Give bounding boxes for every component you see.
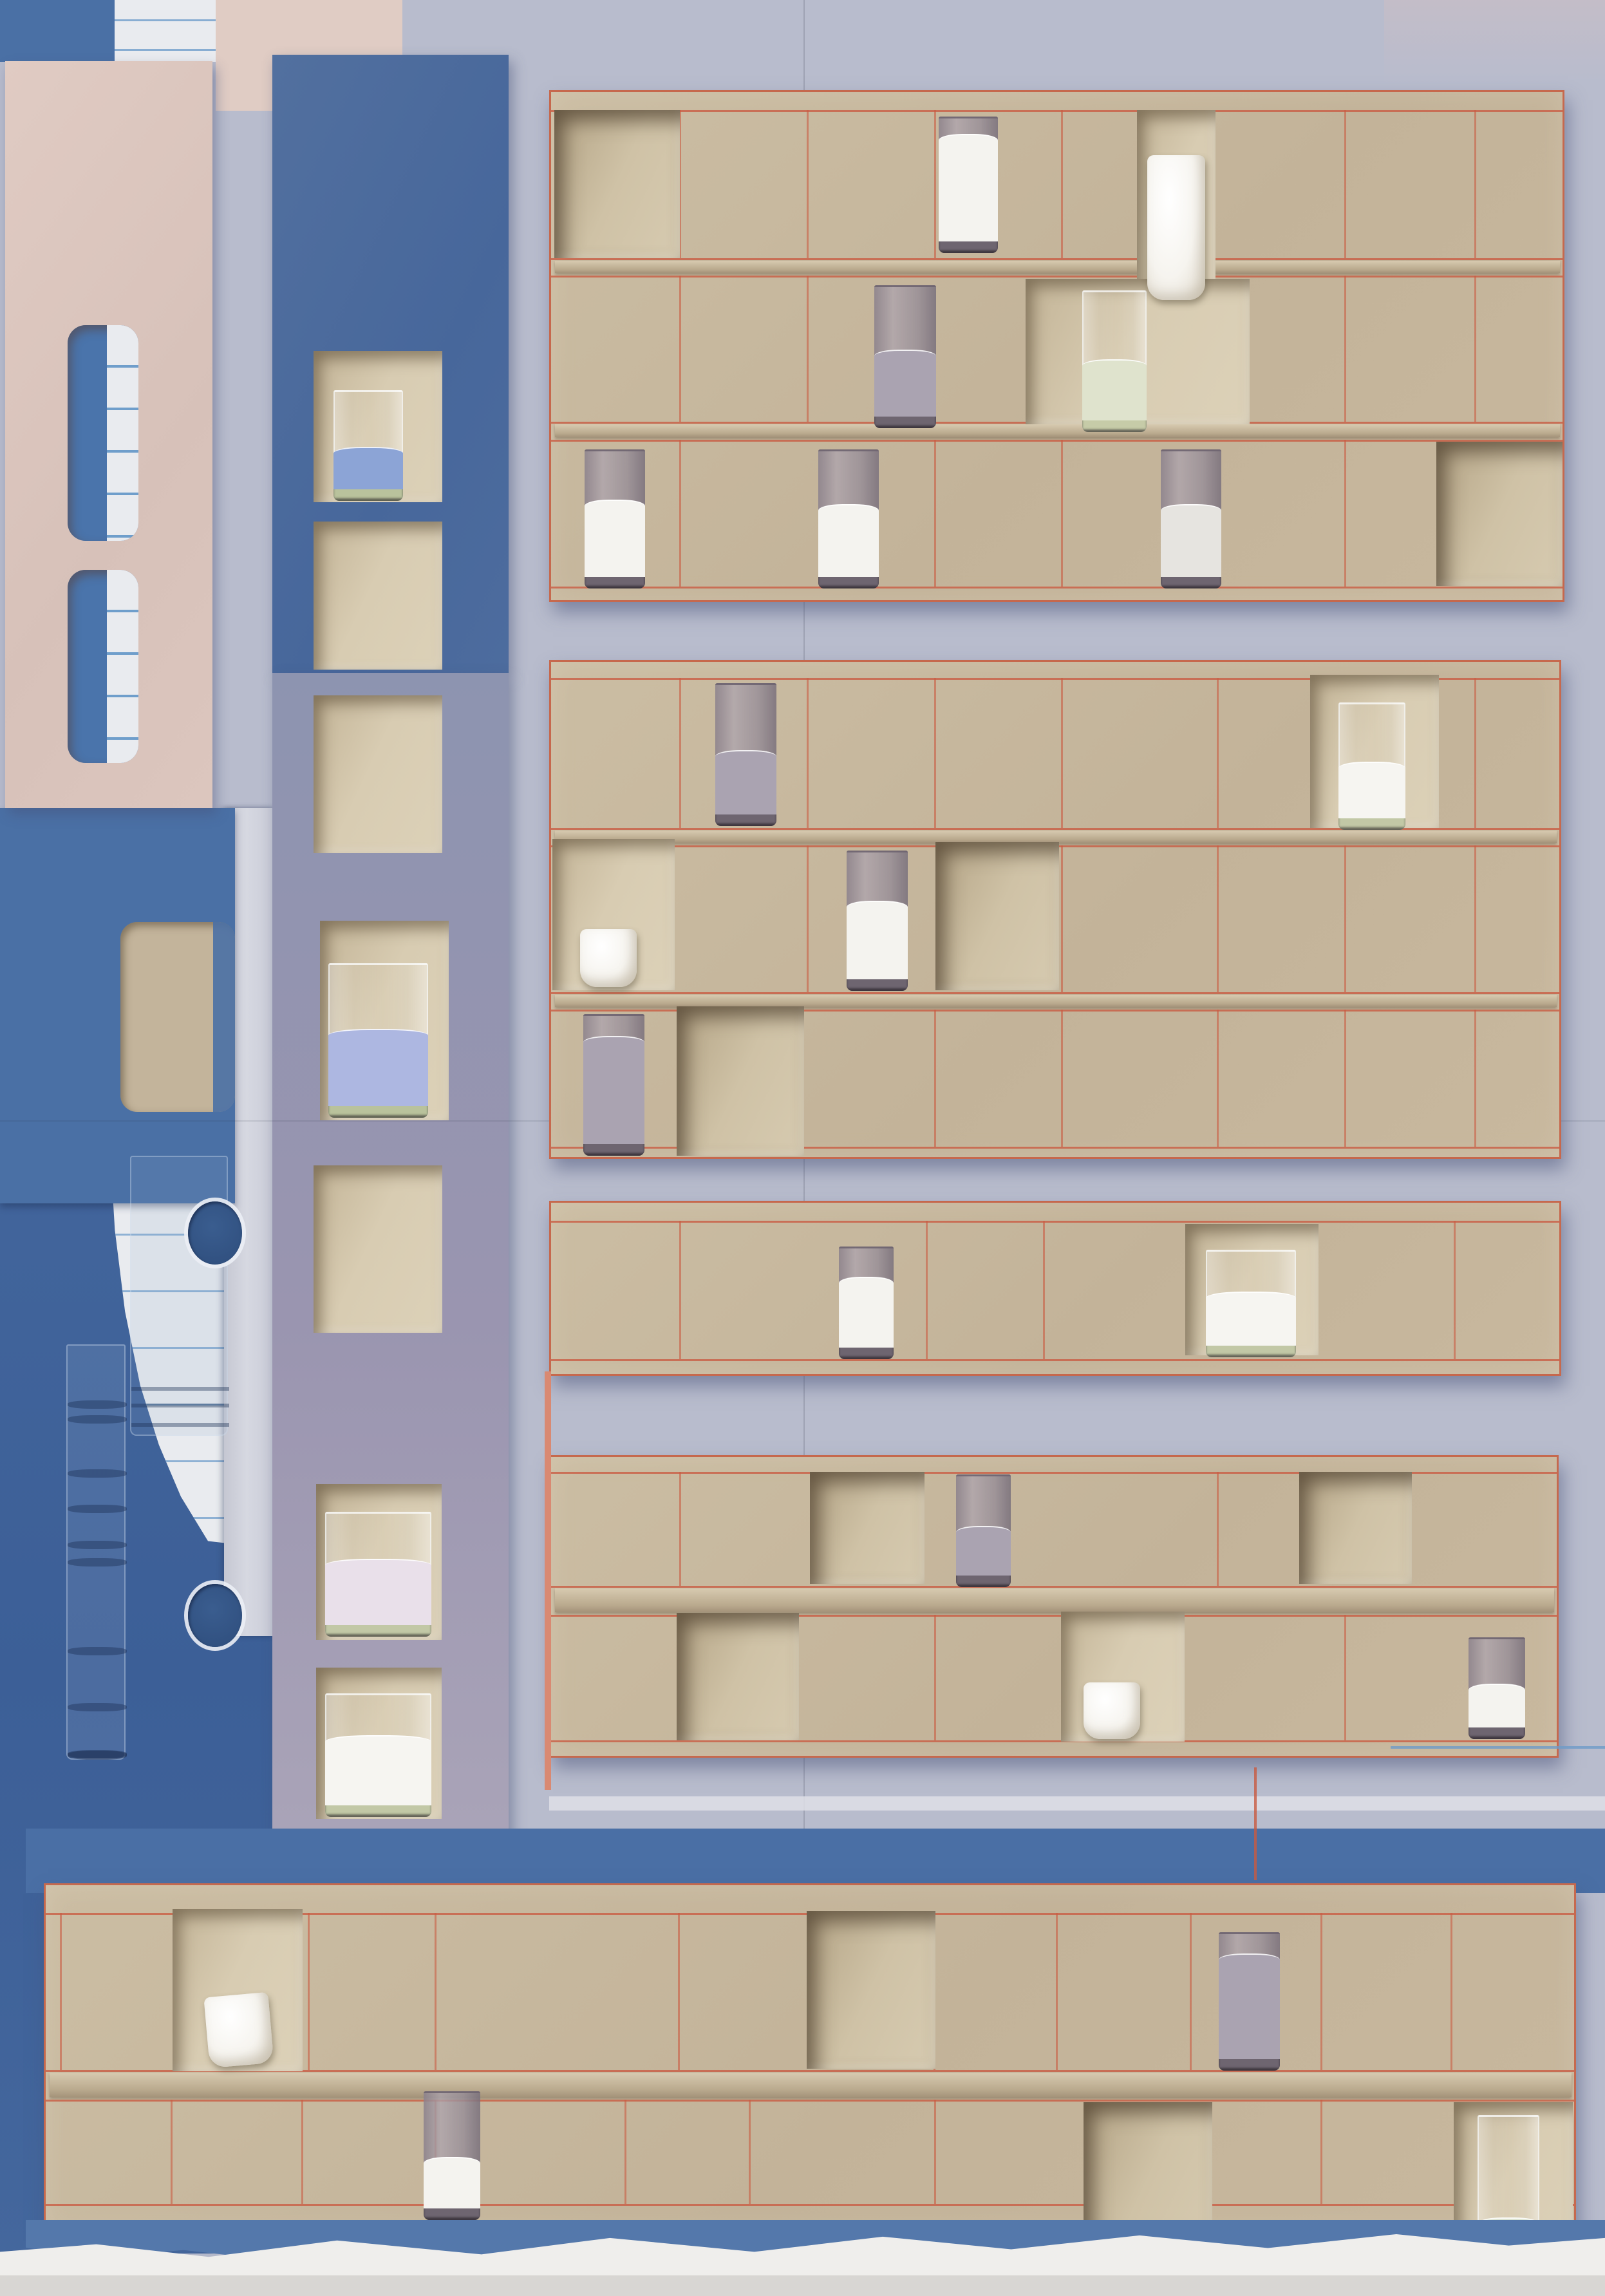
red-grid-line [1474,276,1476,422]
white-ceramic-cup [203,1992,274,2068]
red-grid-line [678,1913,680,2070]
red-grid-line [934,1615,936,1740]
glass-base [939,241,998,253]
red-grid-line [679,276,681,422]
artwork-photo [0,0,1605,2296]
red-grid-line [171,2100,173,2204]
glass-base [585,577,645,588]
red-grid-line [46,2100,1574,2102]
ghost-band [131,1423,229,1427]
glass-fill [818,504,879,577]
red-grid-line [551,1586,1557,1588]
red-grid-line [551,1359,1559,1361]
stack-rim-band [68,1469,127,1478]
red-grid-line [46,2204,1574,2206]
red-grid-line [1320,2100,1322,2204]
pink-slot-2 [68,570,138,763]
glass-fill [874,350,936,417]
recess-empty [677,1613,799,1740]
red-grid-line [1344,440,1346,587]
printed-milk-glass [585,449,645,588]
red-grid-line [551,276,1563,278]
red-grid-line [679,1472,681,1586]
red-grid-line [1061,440,1063,587]
red-grid-line [1056,1913,1058,2070]
grid-panel-fourth [549,1455,1559,1758]
stacked-glasses-print [66,1344,126,1760]
red-grid-line [1217,1472,1219,1586]
ghost-glass-print [130,1156,228,1436]
glass-fill [715,750,776,814]
white-ceramic-tumbler [1147,155,1205,300]
empty-niche-3 [314,1165,442,1333]
glass-fill [1469,1684,1525,1727]
recess-empty [810,1472,925,1584]
red-grid-line [749,2100,751,2204]
red-grid-line [1217,1010,1219,1147]
glass-fill [325,1735,431,1805]
row-shelf [555,831,1557,843]
printed-milk-glass [424,2091,480,2220]
red-grid-line [551,992,1559,994]
printed-milk-glass [1469,1637,1525,1739]
glass-base [325,1805,431,1817]
stack-rim-band [68,1558,127,1567]
row-shelf [555,995,1557,1007]
blue-rule-on-background [1391,1746,1605,1749]
stack-rim-band [68,1415,127,1424]
empty-niche-1 [314,522,442,670]
red-grid-line [1344,1010,1346,1147]
red-grid-line [1061,845,1063,992]
grid-panel-third [549,1201,1561,1376]
printed-milk-glass [939,117,998,253]
red-grid-line [679,1221,681,1359]
red-thread [1254,1767,1257,1880]
glass-fill [1161,504,1221,577]
rule-line [115,19,216,21]
red-grid-line [1043,1221,1045,1359]
glass-base [847,979,908,991]
red-grid-line [624,2100,626,2204]
red-grid-line [308,1913,310,2070]
glass-fill [847,901,908,979]
printed-water-glass [874,285,936,428]
red-grid-line [1474,110,1476,258]
red-grid-line [1474,845,1476,992]
red-grid-line [551,440,1563,442]
empty-niche-2 [314,695,442,853]
glass-fill [1219,1953,1280,2059]
glass-base [874,417,936,428]
glass-fill [333,447,403,489]
printed-water-glass [1219,1932,1280,2071]
ghost-band [131,1387,229,1391]
recess-empty [1299,1472,1412,1584]
red-grid-line [551,828,1559,830]
red-grid-line [807,110,809,258]
row-shelf [555,1588,1554,1612]
red-grid-line [1320,1913,1322,2070]
glass-base [1161,577,1221,588]
salmon-panel-edge [545,1371,551,1790]
glass-base [583,1144,644,1156]
slot-paper-part [107,570,138,763]
small-white-cup [1084,1682,1140,1739]
printed-milk-glass [839,1247,894,1359]
red-grid-line [1474,678,1476,828]
rule-line [115,49,216,51]
punch-hole-1 [188,1201,242,1265]
printed-water-glass [956,1474,1011,1587]
red-grid-line [1217,845,1219,992]
glass-in-pink-milk-niche [325,1512,431,1637]
glass-fill [1206,1292,1296,1346]
real-milk-rocks-glass [1206,1250,1296,1357]
recess-empty [935,842,1059,990]
slot-blue-edge [213,922,235,1112]
gray-lavender-strip [272,673,509,1854]
printed-milk-glass [818,449,879,588]
red-grid-line [807,845,809,992]
stack-rim-band [68,1505,127,1513]
red-grid-line [1190,1913,1192,2070]
real-milk-glass [1338,702,1405,830]
red-grid-line [1344,845,1346,992]
glass-base [1206,1346,1296,1357]
red-grid-line [934,1010,936,1147]
row-shelf [50,2073,1572,2097]
stack-bottom [68,1751,127,1760]
red-grid-line [1061,678,1063,828]
grid-panel-second [549,660,1561,1159]
dark-blue-strip [272,55,509,673]
printed-water-glass [715,683,776,826]
stack-rim-band [68,1647,127,1655]
top-left-blue-paper [0,0,115,62]
pink-slotted-panel [5,61,212,808]
glass-fill [325,1559,431,1625]
red-grid-line [934,440,936,587]
stack-rim-band [68,1541,127,1549]
printed-milk-glass [847,851,908,991]
red-grid-line [1061,110,1063,258]
red-grid-line [807,276,809,422]
glass-base [328,1106,428,1118]
bottom-gray-strip [0,2275,1605,2296]
red-grid-line [1454,1221,1456,1359]
glass-fill [328,1029,428,1106]
glass-fill [1338,762,1405,818]
red-grid-line [551,110,1563,112]
red-grid-line [301,2100,303,2204]
seam-pale-band [549,1796,1605,1811]
glass-base [424,2208,480,2220]
slot-paper-part [107,325,138,541]
red-grid-line [60,1913,62,2070]
red-grid-line [1217,678,1219,828]
red-grid-line [934,2100,936,2204]
punch-hole-2 [188,1584,242,1647]
red-grid-line [1450,1913,1452,2070]
glass-fill [956,1526,1011,1576]
red-grid-line [1344,110,1346,258]
red-grid-line [551,258,1563,260]
recess-empty [554,110,680,258]
top-right-tint [1384,0,1605,84]
glass-fill [585,500,645,577]
red-grid-line [934,678,936,828]
recess-empty [677,1006,804,1156]
glass-fill [839,1277,894,1348]
row-shelf [555,424,1560,437]
glass-in-white-milk-niche [325,1693,431,1817]
stack-rim-band [68,1703,127,1711]
red-grid-line [1344,276,1346,422]
printed-water-glass [583,1014,644,1156]
grid-panel-bottom [44,1883,1576,2231]
red-grid-line [435,1913,436,2070]
glass-base [956,1576,1011,1587]
red-grid-line [551,1221,1559,1223]
stack-rim-band [68,1400,127,1409]
printed-slot-cutout [120,922,235,1112]
row-shelf [555,261,1560,273]
red-grid-line [1474,1010,1476,1147]
glass-base [818,577,879,588]
red-grid-line [807,678,809,828]
printed-milky-water-glass [1161,449,1221,588]
red-grid-line [679,678,681,828]
glass-fill [1082,359,1147,420]
glass-base [1469,1727,1525,1739]
red-grid-line [934,110,936,258]
recess-empty [1436,442,1563,586]
glass-fill [583,1036,644,1144]
red-grid-line [679,440,681,587]
recess-empty [807,1911,935,2069]
real-water-glass [1082,290,1147,432]
glass-fill [424,2157,480,2208]
glass-base [715,814,776,826]
top-ruled-strip [115,0,216,62]
ghost-band [131,1404,229,1407]
grid-panel-top [549,90,1564,602]
glass-base [1219,2059,1280,2071]
glass-fill [939,134,998,241]
red-grid-line [1061,1010,1063,1147]
pink-slot-1 [68,325,138,541]
red-grid-line [551,587,1563,588]
glass-base [333,489,403,501]
red-grid-line [926,1221,928,1359]
red-grid-line [551,1740,1557,1742]
small-white-cup [580,929,637,987]
glass-in-blue-glass-niche [333,390,403,501]
glass-base [1082,420,1147,432]
red-grid-line [1344,1615,1346,1740]
glass-in-lavender-milk-niche [328,963,428,1118]
glass-base [1338,818,1405,830]
glass-base [839,1348,894,1359]
glass-base [325,1625,431,1637]
